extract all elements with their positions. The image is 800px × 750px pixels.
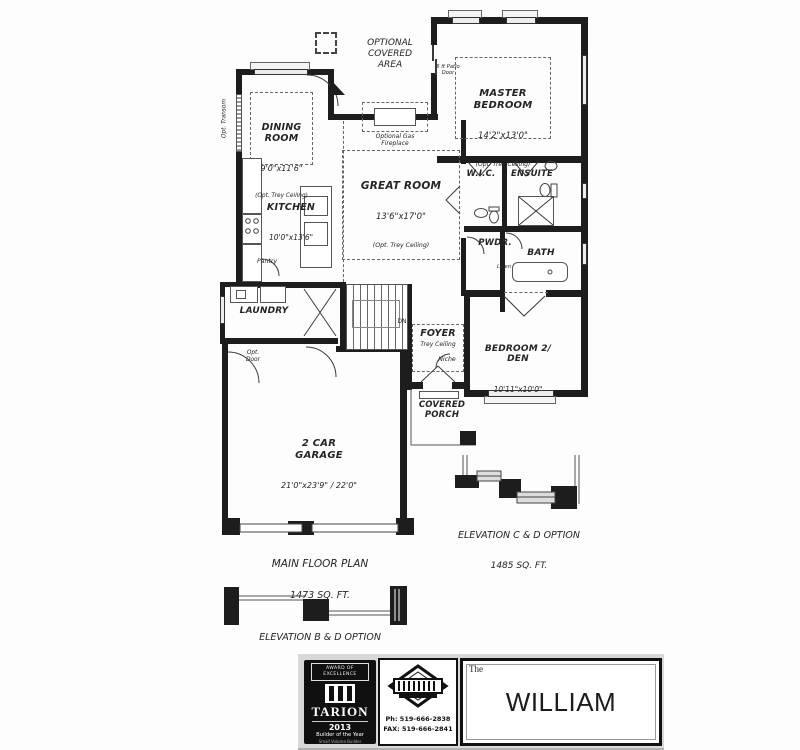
builder-phone: Ph: 519-666-2838 [380,715,456,725]
wall-segment [464,226,588,232]
niche-label: Niche [432,356,462,364]
room-name: MASTER BEDROOM [455,88,551,112]
great-room-label: GREAT ROOM 13'6"x17'0" (Opt. Trey Ceilin… [342,160,460,269]
front-door-step [419,391,459,399]
pantry-label: Pantry [252,258,282,266]
room-dims: 21'0"x23'9" / 22'0" [260,481,378,491]
tarion-honor: Builder of the Year [304,732,376,738]
wic-label: W.I.C. [458,169,504,179]
main-floor-caption: MAIN FLOOR PLAN 1473 SQ. FT. [250,538,390,621]
door-header-dashed-line [504,292,548,293]
garage-corner-pier [396,518,414,535]
room-name: KITCHEN [262,202,320,214]
caption-line2: 1485 SQ. FT. [445,561,593,572]
floor-plan-sheet: OPTIONAL COVERED AREA DINING ROOM 9'0"x1… [0,0,800,750]
bathtub [512,262,568,282]
wall-segment [431,73,437,120]
bath-label: BATH [518,248,564,259]
window [220,296,225,324]
stair-rail [352,300,400,328]
wall-segment [464,290,504,297]
room-name: DINING ROOM [250,122,313,145]
powder-toilet-tank [489,207,499,211]
powder-sink [475,209,488,218]
linen-label: Linen [492,264,516,270]
window [582,55,587,105]
room-dims: 13'6"x17'0" [342,212,460,222]
powder-room-label: PWDR. [472,238,518,248]
model-name-box: The WILLIAM [460,658,662,746]
tarion-award-badge: AWARD OF EXCELLENCE TARION 2013 Builder … [304,660,376,744]
bedroom2-label: BEDROOM 2/ DEN 10'11"x10'0" [478,324,558,414]
window [452,17,480,24]
window [582,183,587,199]
caption-line1: MAIN FLOOR PLAN [250,558,390,571]
builder-fax: FAX: 519-666-2841 [380,725,456,735]
wall-segment [220,338,338,344]
tarion-category: Small Volume Builder [304,739,376,744]
room-dims: 10'11"x10'0" [478,385,558,394]
washer-detail [236,290,246,299]
tarion-brand: TARION [304,704,376,720]
garage-center-pier [288,521,314,535]
garage-label: 2 CAR GARAGE 21'0"x23'9" / 22'0" [260,418,378,511]
elevation-cd-caption: ELEVATION C & D OPTION 1485 SQ. FT. [445,510,593,591]
model-prefix: The [469,664,483,674]
window [582,243,587,265]
room-name: 2 CAR GARAGE [260,438,378,462]
elevation-bd-caption: ELEVATION B & D OPTION [240,632,400,644]
builder-logo-box: Ph: 519-666-2838 FAX: 519-666-2841 [378,658,458,746]
dryer [260,286,286,303]
fireplace-label: Optional Gas Fireplace [362,133,428,148]
door-arc [306,347,336,377]
foyer-label: FOYER [412,328,464,340]
patio-door-note: 6 ft Patio Door [434,64,462,77]
tarion-bars-icon [325,684,355,703]
elevation-cd-drawing [455,455,579,509]
room-name: GREAT ROOM [342,180,460,193]
laundry-label: LAUNDRY [235,306,293,317]
award-of-excellence-text: AWARD OF EXCELLENCE [311,663,369,681]
wall-segment [328,69,334,120]
garage-door [312,524,398,532]
ensuite-label: ENSUITE [504,169,560,179]
model-name: WILLIAM [463,687,659,718]
optional-transom-window [236,94,242,152]
wall-segment [452,382,470,389]
caption-line1: ELEVATION C & D OPTION [445,530,593,542]
wall-segment [464,290,470,397]
powder-toilet [490,211,499,223]
wall-segment [407,382,423,389]
fireplace-box [374,108,416,126]
porch-post [460,431,476,445]
room-dims: 9'0"x11'6" [250,164,313,174]
shower [518,196,554,226]
builder-contact: Ph: 519-666-2838 FAX: 519-666-2841 [380,715,456,735]
stairs-dn-label: DN [394,318,410,325]
optional-covered-area-label: OPTIONAL COVERED AREA [345,38,435,71]
optional-transom-note: Opt. Transom [221,89,228,149]
covered-porch-label: COVERED PORCH [414,400,470,421]
window [254,69,308,75]
foyer-trey-note: Trey Ceiling [412,341,464,348]
tarion-year: 2013 [312,721,368,732]
kitchen-label: KITCHEN 10'0"x13'6" [262,182,320,261]
room-dims: 14'2"x13'0" [455,131,551,141]
optional-post-outline [315,32,337,54]
double-door-x [304,289,336,336]
double-door-swing [504,296,545,316]
garage-corner-pier [222,518,240,535]
room-name: BEDROOM 2/ DEN [478,344,558,366]
builder-house-logo-icon [387,664,449,710]
wall-segment [461,238,466,296]
window [506,17,536,24]
wall-segment [546,290,588,297]
caption-line2: 1473 SQ. FT. [250,590,390,602]
wall-segment [222,342,228,535]
optional-door-note: Opt. Door [240,350,266,364]
room-note: (Opt. Trey Ceiling) [342,242,460,250]
room-note: (Opt. Trey Ceiling) [455,161,551,168]
room-dims: 10'0"x13'6" [262,233,320,242]
